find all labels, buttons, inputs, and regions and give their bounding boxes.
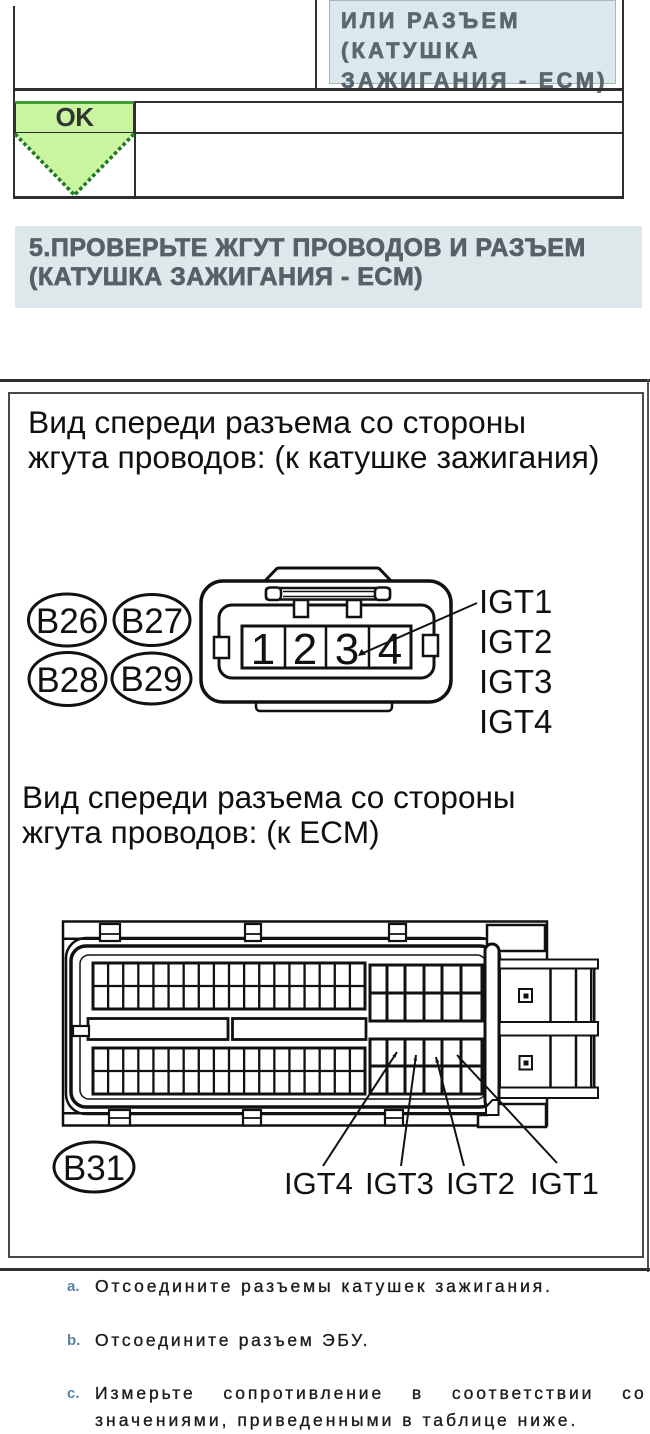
svg-text:B28: B28 xyxy=(36,661,98,700)
svg-text:IGT2: IGT2 xyxy=(446,1166,515,1201)
svg-text:IGT1: IGT1 xyxy=(530,1166,599,1201)
svg-text:B27: B27 xyxy=(121,602,183,641)
svg-text:IGT1: IGT1 xyxy=(479,583,552,620)
svg-text:IGT3: IGT3 xyxy=(479,663,552,700)
svg-text:1: 1 xyxy=(251,625,275,674)
svg-text:2: 2 xyxy=(293,625,317,674)
svg-text:3: 3 xyxy=(335,625,359,674)
svg-text:B26: B26 xyxy=(36,602,98,641)
svg-text:IGT2: IGT2 xyxy=(479,623,552,660)
svg-text:IGT3: IGT3 xyxy=(365,1166,434,1201)
svg-text:IGT4: IGT4 xyxy=(284,1166,353,1201)
svg-text:IGT4: IGT4 xyxy=(479,703,552,740)
svg-text:B29: B29 xyxy=(120,660,182,699)
svg-text:4: 4 xyxy=(378,625,402,674)
svg-text:B31: B31 xyxy=(63,1149,125,1188)
